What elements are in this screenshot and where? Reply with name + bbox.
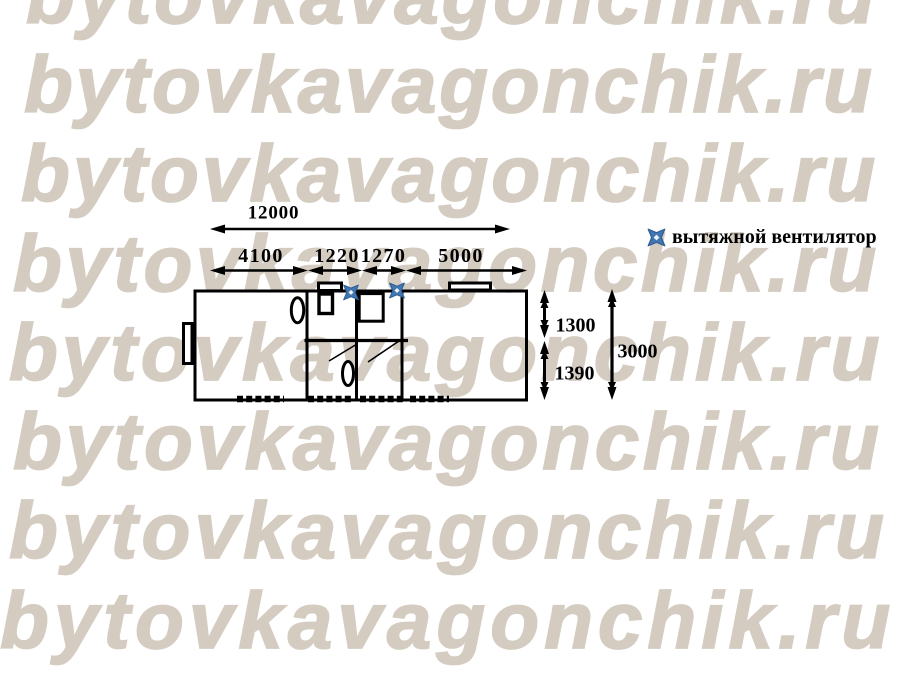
svg-text:3000: 3000 — [618, 341, 658, 363]
svg-text:1390: 1390 — [555, 363, 595, 385]
svg-text:1300: 1300 — [556, 315, 596, 337]
svg-text:1220: 1220 — [314, 245, 360, 267]
svg-text:вытяжной вентилятор: вытяжной вентилятор — [672, 226, 877, 248]
svg-text:4100: 4100 — [238, 245, 284, 267]
svg-text:12000: 12000 — [248, 203, 300, 224]
svg-text:5000: 5000 — [438, 245, 484, 267]
svg-text:1270: 1270 — [361, 245, 407, 267]
